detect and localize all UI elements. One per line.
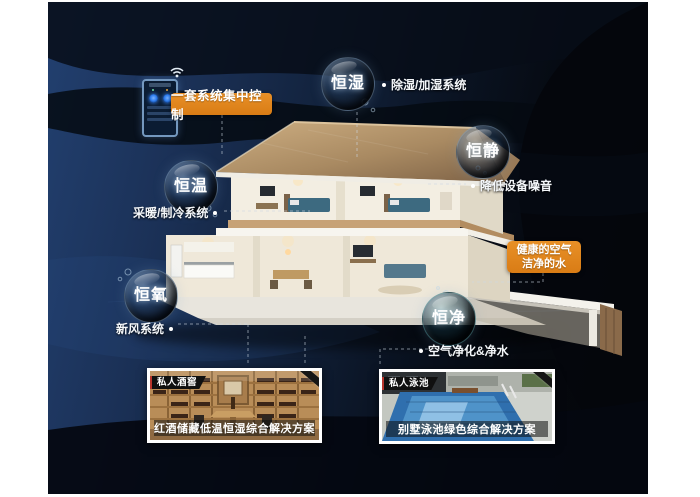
healthy-air-line1: 健康的空气 — [517, 243, 572, 257]
bubble-label: 恒静 — [466, 144, 500, 160]
healthy-air-callout: 健康的空气 洁净的水 — [507, 241, 581, 273]
bubble-constant-humidity: 恒湿 — [321, 57, 375, 111]
note-air-water-purification: 空气净化&净水 — [419, 342, 509, 359]
bubble-constant-purity: 恒净 — [422, 292, 476, 346]
wine-cellar-photo: 私人酒窖 红酒储藏低温恒湿综合解决方案 — [150, 371, 319, 440]
central-control-callout: 一套系统集中控制 — [171, 93, 272, 115]
pool-photo: 私人泳池 别墅泳池绿色综合解决方案 — [382, 372, 552, 441]
bubble-label: 恒温 — [174, 179, 208, 195]
wifi-icon — [169, 64, 185, 78]
bubble-constant-oxygen: 恒氧 — [124, 269, 178, 323]
bullet-dot — [471, 184, 475, 188]
pool-caption: 别墅泳池绿色综合解决方案 — [386, 421, 548, 437]
bullet-dot — [382, 83, 386, 87]
diagram-canvas: 一套系统集中控制 健康的空气 洁净的水 恒湿 恒静 恒温 恒氧 恒净 除湿/加湿… — [48, 2, 648, 494]
phone-topbar — [149, 83, 171, 87]
wine-cellar-badge: 私人酒窖 — [150, 376, 206, 389]
central-control-label: 一套系统集中控制 — [171, 85, 272, 123]
bullet-dot — [169, 327, 173, 331]
bullet-dot — [213, 211, 217, 215]
note-reduce-noise: 降低设备噪音 — [471, 177, 552, 194]
healthy-air-line2: 洁净的水 — [522, 257, 566, 271]
wine-cellar-caption: 红酒储藏低温恒湿综合解决方案 — [154, 420, 315, 436]
bubble-label: 恒净 — [432, 311, 466, 327]
bubble-constant-quiet: 恒静 — [456, 125, 510, 179]
pool-card: 私人泳池 别墅泳池绿色综合解决方案 — [379, 369, 555, 444]
phone-dial-icon — [149, 94, 158, 103]
note-fresh-air-system: 新风系统 — [116, 320, 173, 337]
pool-badge: 私人泳池 — [382, 377, 438, 390]
note-dehumidify-system: 除湿/加湿系统 — [382, 76, 466, 93]
wine-cellar-card: 私人酒窖 红酒储藏低温恒湿综合解决方案 — [147, 368, 322, 443]
poster: 一套系统集中控制 健康的空气 洁净的水 恒湿 恒静 恒温 恒氧 恒净 除湿/加湿… — [0, 0, 700, 497]
note-heating-cooling-system: 采暖/制冷系统 — [133, 204, 217, 221]
bullet-dot — [419, 349, 423, 353]
bubble-label: 恒氧 — [134, 288, 168, 304]
bubble-label: 恒湿 — [331, 76, 365, 92]
